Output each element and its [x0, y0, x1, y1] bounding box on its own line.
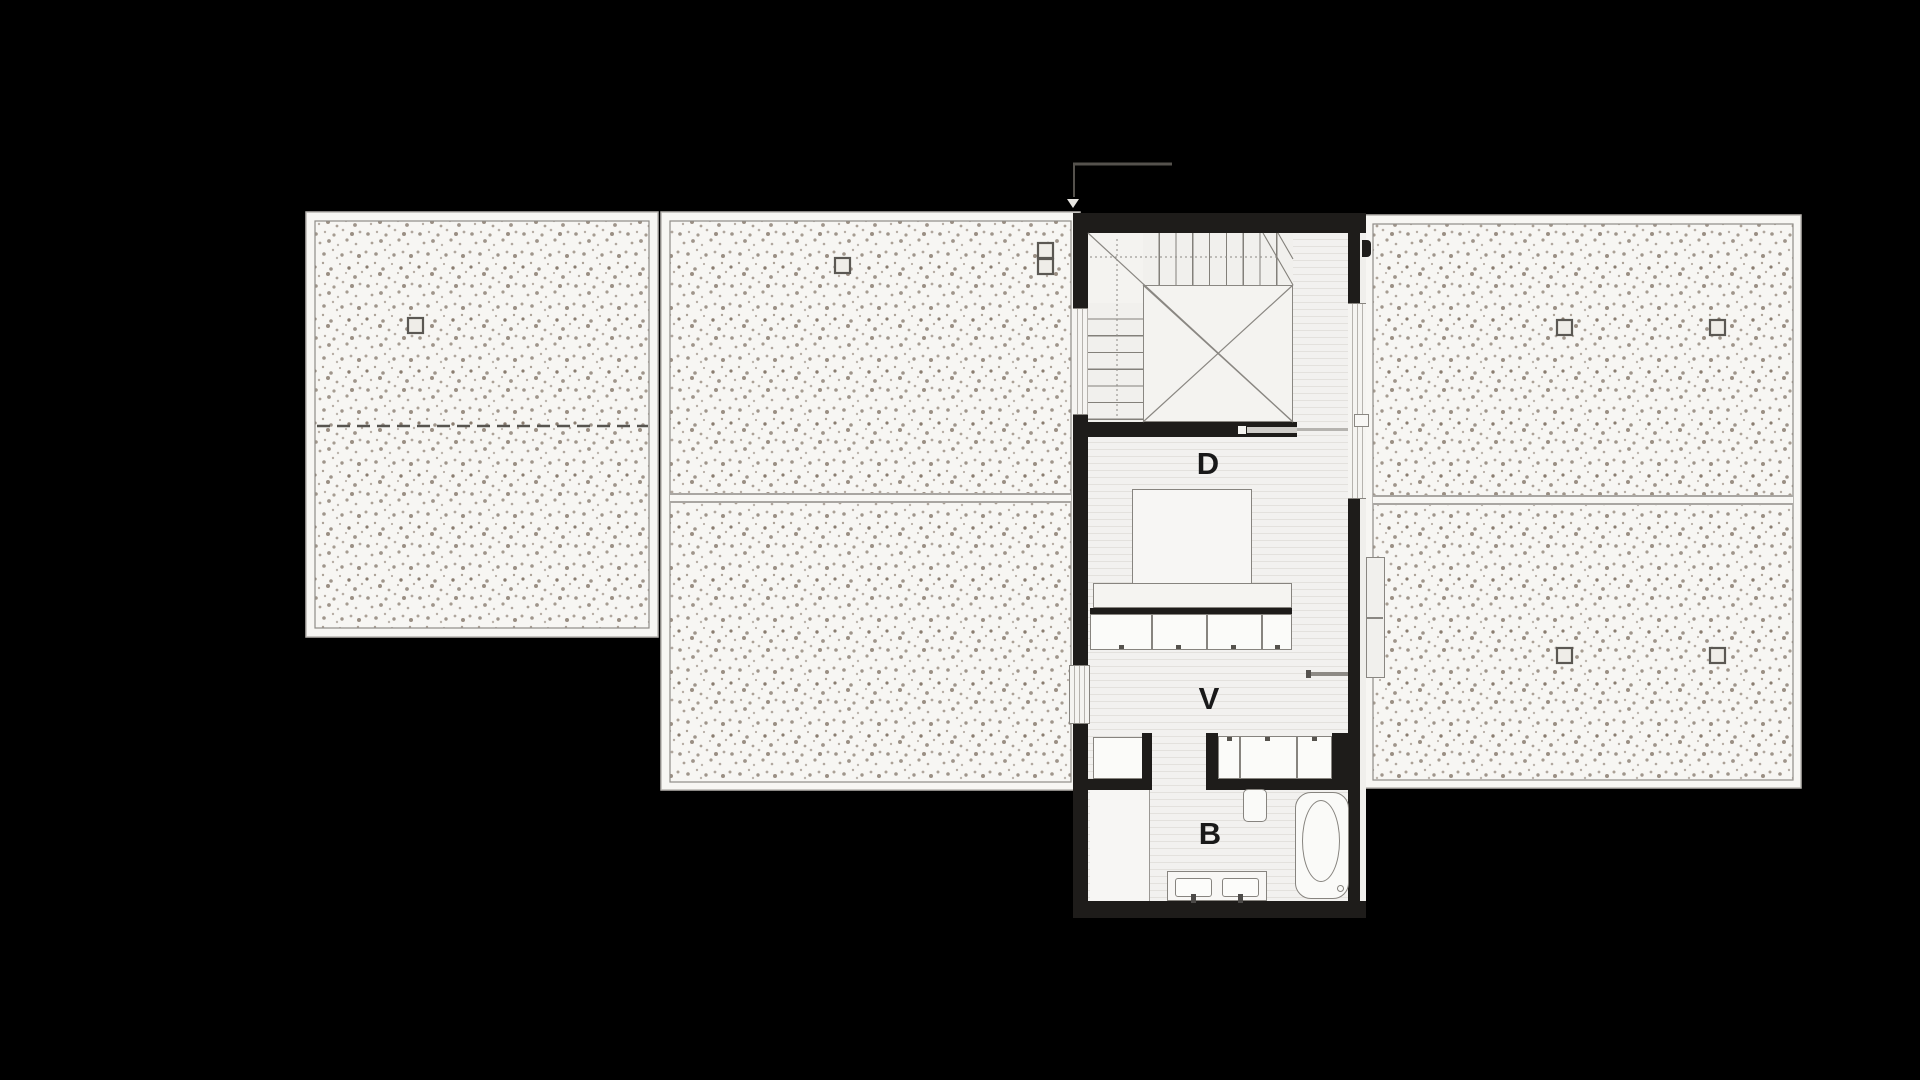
room-label-d: D: [1186, 448, 1230, 479]
stair-lines-overlay: [1073, 213, 1366, 918]
east-window-jamb: [1354, 414, 1369, 427]
roof-panel-left: [306, 212, 658, 637]
section-arrow: [1067, 199, 1079, 208]
skylight-marker: [835, 258, 850, 273]
skylight-marker: [1710, 320, 1725, 335]
skylight-marker: [1038, 243, 1053, 258]
exterior-door-panel: [1366, 557, 1385, 678]
room-label-b: B: [1188, 818, 1232, 849]
skylight-marker: [1557, 648, 1572, 663]
room-label-v: V: [1187, 683, 1231, 714]
east-wall-hinge-bump: [1362, 240, 1371, 257]
section-cut-marker: [1067, 163, 1172, 208]
roof-panel-middle: [661, 212, 1080, 790]
roof-panels-drawing: [0, 0, 1920, 1080]
door-panel-divider: [1367, 617, 1383, 619]
skylight-marker: [1557, 320, 1572, 335]
skylight-marker: [1038, 259, 1053, 274]
skylight-marker: [1710, 648, 1725, 663]
skylight-marker: [408, 318, 423, 333]
building-unit: D V B: [1073, 213, 1366, 918]
roof-panel-right: [1364, 215, 1801, 788]
floor-plan-canvas: D V B: [0, 0, 1920, 1080]
